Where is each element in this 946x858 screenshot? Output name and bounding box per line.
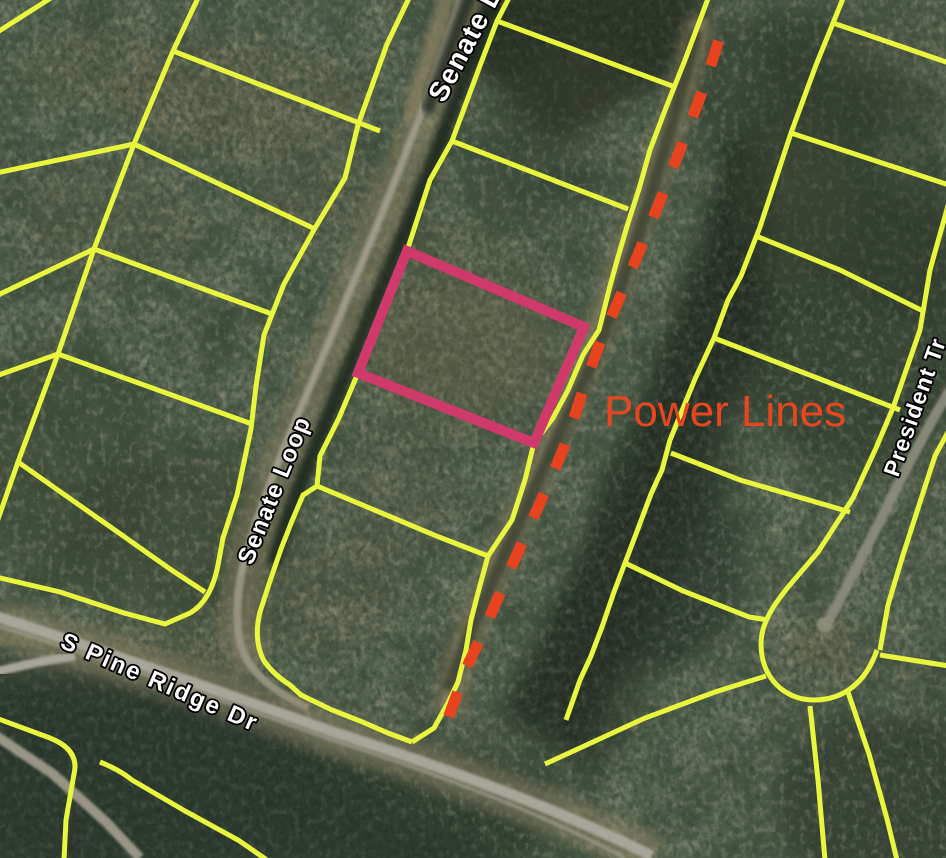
svg-text:Power Lines: Power Lines [604, 387, 846, 436]
